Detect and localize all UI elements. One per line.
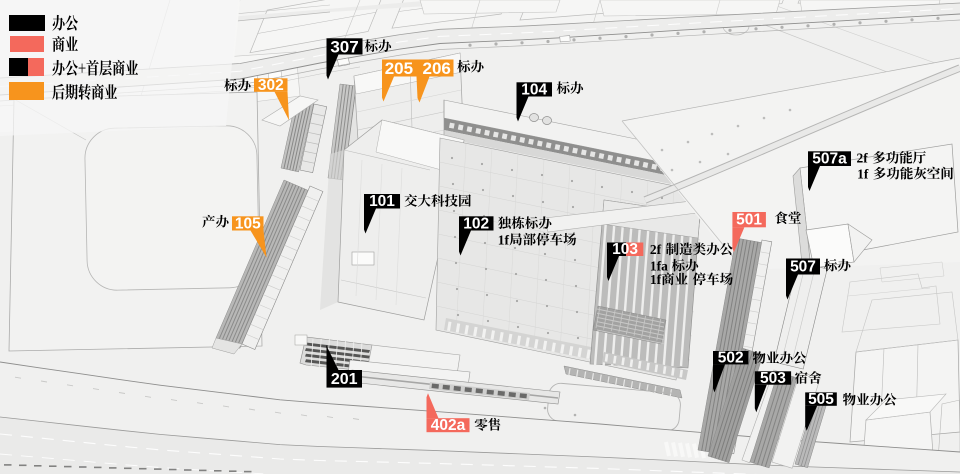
svg-text:302: 302 [258,77,284,94]
svg-text:1f: 1f [498,232,510,247]
svg-text:2f: 2f [857,151,869,166]
svg-text:2f: 2f [650,242,662,257]
svg-text:1f: 1f [857,166,869,181]
svg-text:102: 102 [463,215,489,232]
svg-text:1f: 1f [650,272,662,287]
svg-text:503: 503 [760,370,786,387]
svg-text:505: 505 [808,391,834,408]
svg-text:205 206: 205 206 [385,59,451,78]
svg-text:101: 101 [369,193,395,210]
svg-text:201: 201 [331,371,358,388]
svg-text:105: 105 [235,215,261,232]
svg-text:402a: 402a [431,417,466,434]
svg-text:307: 307 [330,37,358,56]
svg-text:501: 501 [736,212,762,229]
svg-text:507: 507 [790,259,816,276]
svg-text:104: 104 [521,81,547,98]
svg-text:502: 502 [718,350,744,367]
svg-text:103: 103 [612,241,638,258]
svg-text:507a: 507a [812,151,847,168]
